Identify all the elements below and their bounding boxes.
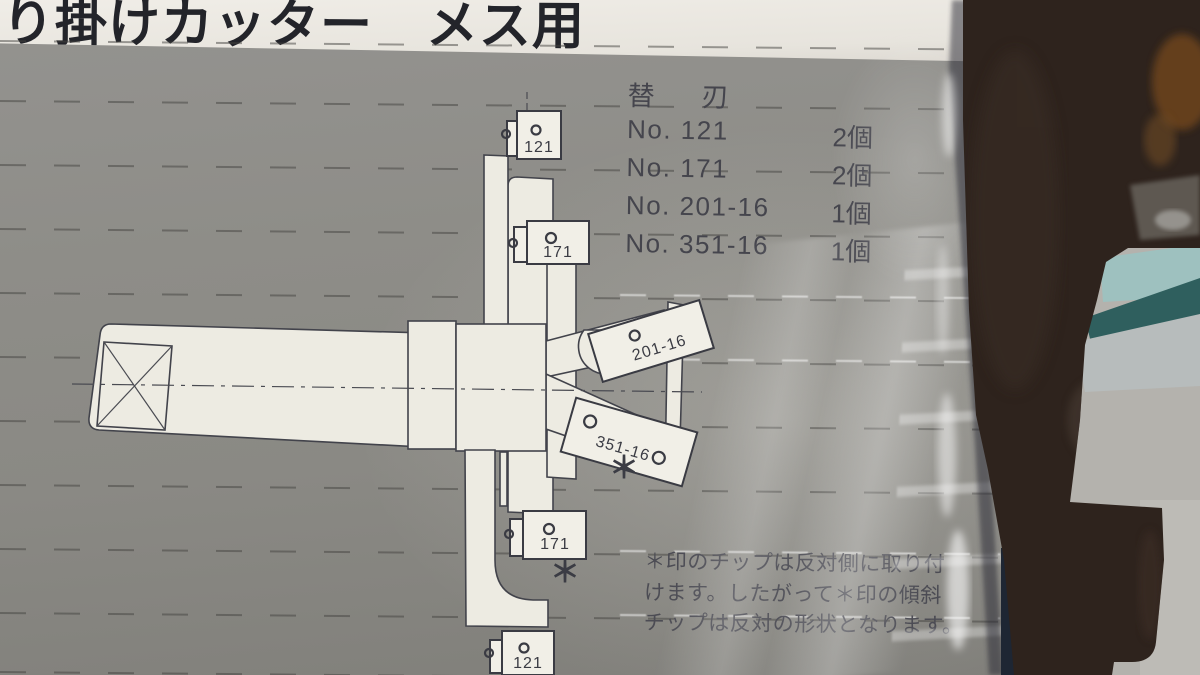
blade-label: 171: [543, 244, 573, 261]
shaft-collar: [408, 321, 456, 449]
instruction-paper: り掛けカッター メス用 替 刃 No. 121 2個 No. 171 2個: [0, 0, 1012, 675]
blade-171-lower: 171: [505, 511, 586, 559]
blade-121-top: 121: [502, 111, 561, 159]
blade-label: 121: [513, 655, 543, 672]
rust-patch: [1144, 114, 1176, 166]
note-line: チップは反対の形状となります。: [644, 608, 964, 642]
right-side-photo: [930, 0, 1200, 675]
metal-fitting: [1130, 175, 1200, 240]
title-band: り掛けカッター メス用: [0, 0, 1012, 62]
photo-of-instruction-sheet: り掛けカッター メス用 替 刃 No. 121 2個 No. 171 2個: [0, 0, 1200, 675]
part-qty: 1個: [830, 231, 871, 270]
blade-201-16: 201-16: [588, 300, 714, 382]
blade-label: 121: [524, 139, 554, 156]
note-line: けます。したがって＊印の傾斜: [644, 578, 964, 612]
note-line: ＊印のチップは反対側に取り付: [644, 547, 964, 581]
metal-glint: [1155, 210, 1191, 230]
part-qty: 1個: [831, 193, 872, 232]
asterisk-marker: ＊: [550, 556, 580, 589]
tool-highlight: [970, 50, 1060, 390]
asterisk-footnote: ＊印のチップは反対側に取り付 けます。したがって＊印の傾斜 チップは反対の形状と…: [644, 547, 965, 642]
asterisk-marker: ＊: [609, 452, 639, 485]
part-qty: 2個: [832, 155, 873, 194]
part-qty: 2個: [832, 117, 873, 156]
blade-121-bottom: 121: [485, 631, 554, 675]
shaft-end-cross: [97, 342, 172, 430]
blade-171-upper: 171: [509, 221, 589, 264]
hub-block: [456, 324, 546, 451]
blade-label: 171: [540, 536, 570, 553]
page-title: り掛けカッター メス用: [2, 0, 585, 59]
